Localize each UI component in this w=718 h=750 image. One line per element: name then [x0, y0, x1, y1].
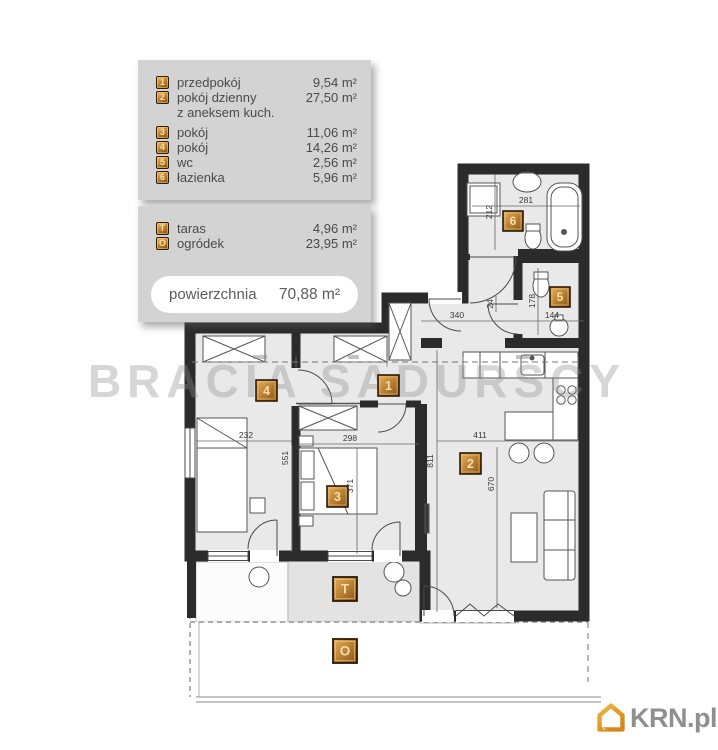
room-tag-terrace-letter: T	[341, 582, 350, 597]
room-name-3: pokój	[177, 125, 208, 140]
toilet-wc	[533, 272, 549, 297]
garden-name: ogródek	[177, 236, 224, 251]
tv	[425, 504, 429, 533]
room-chip-3: 3	[156, 126, 169, 139]
room-tag-bath: 6	[503, 211, 523, 231]
room-area-1: 9,54 m²	[313, 75, 357, 90]
stool-b	[534, 443, 554, 463]
watermark: BRACIA SADURSCY	[88, 355, 626, 407]
dim-room4-width: 232	[239, 430, 253, 440]
legend-row-5: 5 wc 2,56 m²	[156, 155, 357, 170]
krn-logo: KRN.pl	[596, 702, 717, 734]
door-living-terrace	[422, 610, 454, 622]
legend-rooms-panel: 1 przedpokój 9,54 m² 2 pokój dzienny 27,…	[138, 60, 371, 200]
patio-area	[196, 562, 288, 622]
garden-area-value: 23,95 m²	[306, 236, 357, 251]
garden-fence	[196, 697, 601, 702]
dim-vestibule: 24	[485, 299, 495, 309]
legend-row-3: 3 pokój 11,06 m²	[156, 125, 357, 140]
room-tag-wc: 5	[550, 287, 570, 307]
room-name-5: wc	[177, 155, 193, 170]
legend-row-2b: z aneksem kuch.	[156, 105, 357, 120]
room-name-2b: z aneksem kuch.	[177, 105, 275, 120]
stool-a	[509, 443, 529, 463]
room-name-4: pokój	[177, 140, 208, 155]
room-tag-living: 2	[460, 453, 481, 474]
legend-outdoor-panel: T taras 4,96 m² O ogródek 23,95 m² powie…	[138, 206, 371, 322]
room-tag-hall: 1	[378, 375, 399, 396]
room-name-2: pokój dzienny	[177, 90, 257, 105]
room-chip-5: 5	[156, 156, 169, 169]
garden-chip: O	[156, 237, 169, 250]
nightstand-room3-b	[299, 516, 313, 526]
room-chip-1: 1	[156, 76, 169, 89]
terrace-table	[384, 562, 404, 582]
entrance-door	[428, 292, 462, 304]
room-name-6: łazienka	[177, 170, 225, 185]
garden-area	[190, 622, 588, 697]
dim-living-width: 411	[473, 430, 487, 440]
dim-room3-width: 298	[343, 433, 357, 443]
legend-row-terrace: T taras 4,96 m²	[156, 221, 357, 236]
legend-row-4: 4 pokój 14,26 m²	[156, 140, 357, 155]
room-area-5: 2,56 m²	[313, 155, 357, 170]
toilet-bath	[525, 224, 541, 249]
room-tag-room4-number: 4	[263, 384, 270, 398]
nightstand-room3-a	[299, 436, 313, 446]
room-tag-room3-number: 3	[334, 490, 341, 504]
room-chip-4: 4	[156, 141, 169, 154]
folding-door-living	[456, 610, 514, 622]
room-area-2: 27,50 m²	[306, 90, 357, 105]
wardrobe-hall-tall	[389, 303, 411, 360]
dim-wc-height: 178	[527, 294, 537, 308]
sofa	[544, 491, 575, 580]
room-area-6: 5,96 m²	[313, 170, 357, 185]
patio-table	[249, 567, 269, 587]
coffee-table	[511, 513, 537, 562]
room-tag-garden: O	[333, 639, 357, 663]
nightstand-room4	[250, 498, 265, 513]
wall-stub-left	[187, 556, 196, 618]
floorplan-page: 281 212 178 144 24 340 232 551 298 371 4…	[0, 0, 718, 750]
legend-row-garden: O ogródek 23,95 m²	[156, 236, 357, 251]
room-area-4: 14,26 m²	[306, 140, 357, 155]
terrace-chip: T	[156, 222, 169, 235]
room-tag-room4: 4	[256, 380, 277, 401]
legend-row-2: 2 pokój dzienny 27,50 m²	[156, 90, 357, 105]
legend-row-6: 6 łazienka 5,96 m²	[156, 170, 357, 185]
room-tag-terrace: T	[333, 577, 357, 601]
total-area-label: powierzchnia	[169, 286, 257, 303]
total-area-pill: powierzchnia 70,88 m²	[151, 276, 358, 313]
room-name-1: przedpokój	[177, 75, 241, 90]
dim-living-height: 670	[486, 477, 496, 491]
legend-row-1: 1 przedpokój 9,54 m²	[156, 75, 357, 90]
terrace-area-value: 4,96 m²	[313, 221, 357, 236]
dim-room4-height: 551	[280, 451, 290, 465]
kitchen-peninsula	[505, 412, 553, 440]
dim-hall-width: 340	[450, 310, 464, 320]
house-icon	[596, 702, 626, 734]
door-room4-terrace	[250, 550, 279, 562]
washbasin-bath	[513, 172, 541, 192]
room-tag-garden-letter: O	[340, 644, 351, 659]
room-tag-hall-number: 1	[385, 379, 392, 393]
terrace-name: taras	[177, 221, 206, 236]
dim-bath-width: 281	[519, 195, 533, 205]
room-tag-living-number: 2	[467, 457, 474, 471]
krn-logo-text: KRN.pl	[630, 703, 717, 734]
room-chip-2: 2	[156, 91, 169, 104]
room-area-3: 11,06 m²	[307, 125, 357, 140]
door-room3-terrace	[374, 550, 402, 562]
bed-room3	[299, 436, 377, 526]
wardrobe-room3	[299, 406, 357, 430]
dim-bath-height: 212	[484, 205, 494, 219]
room-chip-6: 6	[156, 171, 169, 184]
total-area-value: 70,88 m²	[279, 286, 340, 304]
room-tag-bath-number: 6	[510, 214, 517, 228]
bathtub	[547, 183, 582, 251]
room-tag-room3: 3	[327, 486, 348, 507]
room-tag-wc-number: 5	[557, 290, 564, 304]
dim-living-height-full: 811	[425, 454, 435, 468]
dim-wc-width: 144	[545, 310, 559, 320]
terrace-chair	[395, 580, 411, 596]
